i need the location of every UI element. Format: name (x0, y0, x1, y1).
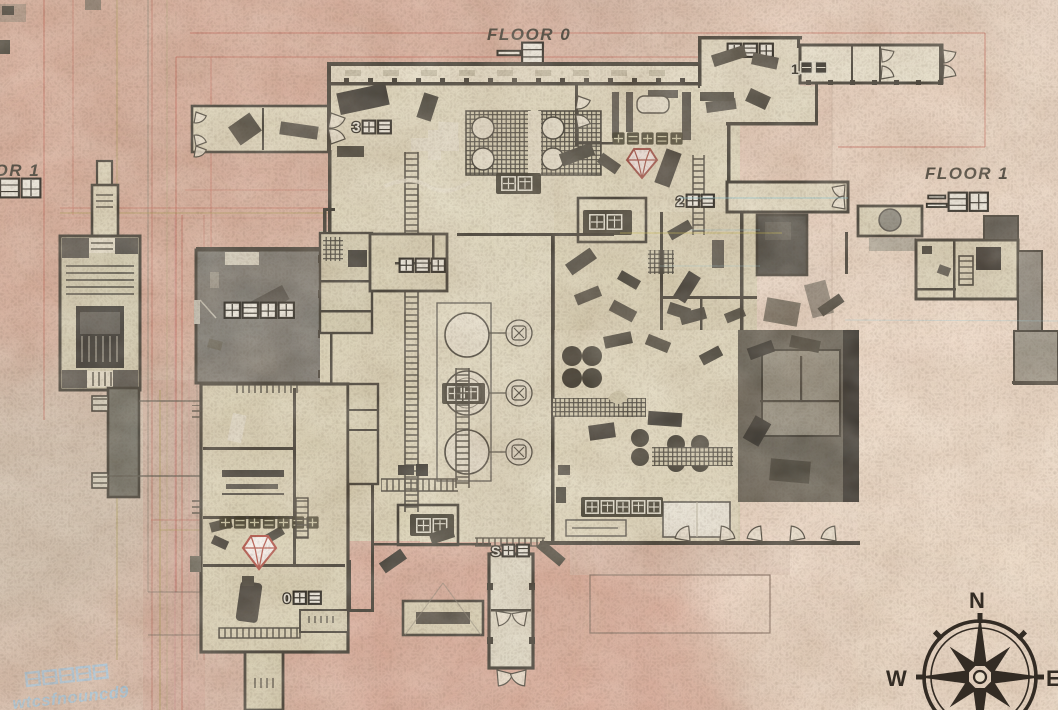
svg-text:N: N (969, 588, 985, 613)
svg-text:W: W (886, 666, 907, 691)
svg-text:E: E (1046, 666, 1058, 691)
